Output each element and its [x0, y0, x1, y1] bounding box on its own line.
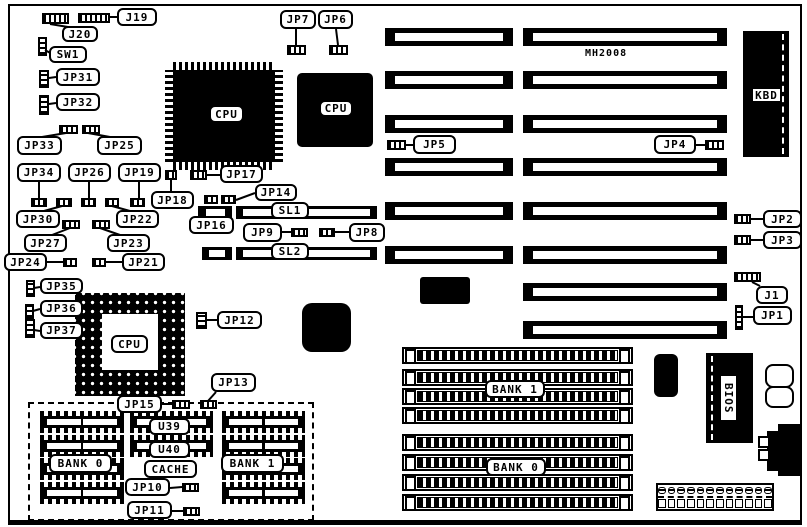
callout-sw1: SW1 [49, 46, 87, 63]
callout-jp13: JP13 [211, 373, 256, 392]
chip-label-u40: U40 [149, 441, 190, 458]
motherboard-diagram: MH2008 J19 J20 SW1 JP31 JP32 JP33 JP25 J… [0, 0, 807, 527]
callout-jp22: JP22 [116, 210, 159, 228]
callout-jp25: JP25 [97, 136, 142, 155]
callout-jp5: JP5 [413, 135, 456, 154]
callout-jp19: JP19 [118, 163, 161, 182]
callout-jp21: JP21 [122, 253, 165, 271]
callout-jp31: JP31 [56, 68, 100, 86]
callout-jp32: JP32 [56, 93, 100, 111]
bios-label: BIOS [719, 374, 738, 422]
simm-bank1-label: BANK 1 [485, 380, 545, 398]
callout-jp37: JP37 [40, 322, 83, 339]
callout-jp6: JP6 [318, 10, 353, 29]
callout-jp18: JP18 [151, 191, 194, 209]
callout-jp4: JP4 [654, 135, 696, 154]
callout-jp36: JP36 [40, 300, 83, 317]
kbd-label: KBD [751, 87, 782, 103]
sl1-label: SL1 [271, 202, 309, 219]
callout-jp33: JP33 [17, 136, 62, 155]
callout-jp1: JP1 [753, 306, 792, 325]
callout-jp7: JP7 [280, 10, 316, 29]
dip-bank1-label: BANK 1 [221, 454, 284, 473]
chip-label-u39: U39 [149, 418, 190, 435]
callout-j19: J19 [117, 8, 157, 26]
callout-jp27: JP27 [24, 234, 67, 252]
callout-jp30: JP30 [16, 210, 60, 228]
callout-j1: J1 [756, 286, 788, 304]
callout-jp15: JP15 [117, 395, 162, 413]
callout-jp8: JP8 [349, 223, 385, 242]
cpu-qfp-label: CPU [209, 105, 244, 123]
callout-jp12: JP12 [217, 311, 262, 329]
cache-label: CACHE [144, 460, 197, 478]
callout-jp34: JP34 [17, 163, 61, 182]
callout-jp9: JP9 [243, 223, 282, 242]
callout-jp2: JP2 [763, 210, 802, 228]
callout-jp3: JP3 [763, 231, 802, 249]
callout-jp23: JP23 [107, 234, 150, 252]
callout-jp10: JP10 [125, 478, 170, 496]
sl2-label: SL2 [271, 243, 309, 260]
cpu-socket-label: CPU [111, 335, 148, 353]
cpu-plcc-label: CPU [319, 100, 353, 117]
board-model-text: MH2008 [585, 48, 627, 59]
callout-jp11: JP11 [127, 501, 172, 519]
callout-jp26: JP26 [68, 163, 111, 182]
callout-jp35: JP35 [40, 278, 83, 294]
callout-j20: J20 [62, 26, 98, 42]
dip-bank0-label: BANK 0 [49, 454, 112, 473]
callout-jp24: JP24 [4, 253, 47, 271]
simm-bank0-label: BANK 0 [486, 458, 546, 476]
callout-jp14: JP14 [255, 184, 297, 201]
callout-jp17: JP17 [220, 165, 263, 183]
callout-jp16: JP16 [189, 216, 234, 234]
